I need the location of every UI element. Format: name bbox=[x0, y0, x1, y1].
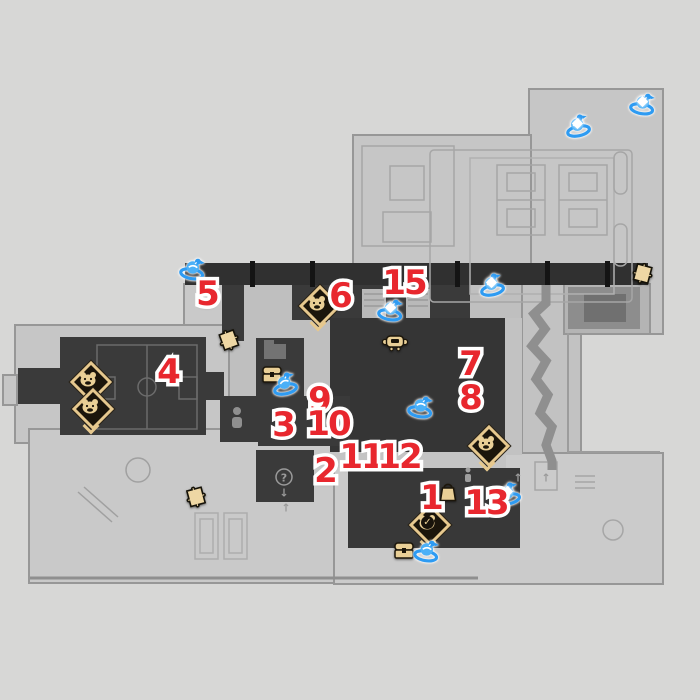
ellipse-deco bbox=[314, 305, 320, 309]
path-deco bbox=[441, 488, 456, 501]
path-deco bbox=[582, 115, 587, 119]
svg-deco bbox=[476, 434, 496, 452]
origami-bird-icon bbox=[408, 394, 435, 425]
number-fill: 6 bbox=[329, 279, 351, 313]
enemy-diamond-icon bbox=[467, 424, 505, 462]
map-room bbox=[584, 294, 626, 322]
number-fill: 3 bbox=[272, 408, 294, 442]
map-number-marker: 1313 bbox=[464, 486, 507, 520]
svg-deco bbox=[269, 368, 301, 400]
path-deco bbox=[200, 261, 205, 265]
warp-trotter-icon bbox=[382, 334, 408, 356]
map-number-marker: 55 bbox=[196, 277, 218, 311]
map-symbol-glyph: ? bbox=[281, 473, 287, 484]
origami-bird-icon bbox=[630, 91, 657, 122]
number-fill: 15 bbox=[382, 266, 425, 300]
ellipse-deco bbox=[85, 381, 91, 385]
number-fill: 1 bbox=[420, 481, 442, 515]
map-door-tick bbox=[605, 261, 610, 287]
circle-deco bbox=[90, 378, 92, 380]
number-fill: 11 bbox=[339, 440, 382, 474]
path-deco bbox=[650, 96, 655, 100]
svg-deco bbox=[405, 391, 436, 422]
enemy-face-icon bbox=[476, 434, 496, 456]
origami-bird-icon bbox=[414, 538, 441, 569]
number-fill: 12 bbox=[377, 440, 420, 474]
svg-deco bbox=[215, 326, 246, 357]
map-number-marker: 44 bbox=[157, 355, 179, 389]
path-deco bbox=[512, 483, 517, 487]
svg-deco bbox=[307, 294, 327, 312]
game-level-map: ?↓↑↑↑ ✓ bbox=[0, 0, 700, 700]
map-door-tick bbox=[250, 261, 255, 287]
map-number-marker: 66 bbox=[329, 279, 351, 313]
number-fill: 2 bbox=[314, 454, 336, 488]
path-deco bbox=[428, 399, 433, 403]
circle-deco bbox=[92, 405, 94, 407]
map-number-marker: 88 bbox=[459, 381, 481, 415]
path-deco bbox=[289, 373, 294, 377]
map-number-marker: 22 bbox=[314, 454, 336, 488]
origami-bird-icon bbox=[272, 371, 299, 402]
map-number-marker: 11 bbox=[420, 481, 442, 515]
map-symbol-glyph: ↑ bbox=[281, 503, 290, 514]
map-room bbox=[18, 368, 62, 404]
map-number-marker: 77 bbox=[459, 347, 481, 381]
circle-deco bbox=[313, 302, 315, 304]
number-fill: 5 bbox=[196, 277, 218, 311]
map-corridor bbox=[505, 318, 522, 455]
origami-bird-icon bbox=[479, 272, 506, 303]
map-number-marker: 33 bbox=[272, 408, 294, 442]
path-deco bbox=[184, 485, 207, 509]
map-number-marker: 1010 bbox=[306, 407, 349, 441]
circle-deco bbox=[84, 378, 86, 380]
number-fill: 13 bbox=[464, 486, 507, 520]
svg-deco bbox=[78, 370, 98, 388]
svg-deco bbox=[80, 397, 100, 415]
map-room bbox=[448, 285, 470, 320]
map-room bbox=[204, 372, 224, 400]
map-plate bbox=[2, 374, 18, 406]
ellipse-deco bbox=[483, 445, 489, 449]
number-fill: 8 bbox=[459, 381, 481, 415]
path-deco bbox=[496, 274, 501, 278]
map-symbol-glyph: ↑ bbox=[541, 473, 550, 484]
number-fill: 4 bbox=[157, 355, 179, 389]
rect-deco bbox=[402, 548, 406, 553]
ellipse-deco bbox=[87, 408, 93, 412]
circle-deco bbox=[86, 405, 88, 407]
map-symbol-glyph: ↓ bbox=[279, 488, 288, 499]
svg-deco bbox=[382, 334, 408, 352]
enemy-face-icon bbox=[307, 294, 327, 316]
puzzle-piece-icon bbox=[631, 263, 655, 291]
puzzle-piece-icon bbox=[185, 486, 209, 514]
enemy-diamond-icon bbox=[71, 387, 109, 425]
circle-deco bbox=[397, 347, 400, 350]
circle-deco bbox=[390, 347, 393, 350]
number-fill: 7 bbox=[459, 347, 481, 381]
circle-deco bbox=[482, 442, 484, 444]
path-deco bbox=[631, 261, 654, 285]
origami-bird-icon bbox=[565, 113, 592, 144]
svg-deco bbox=[411, 535, 442, 566]
map-number-marker: 1515 bbox=[382, 266, 425, 300]
puzzle-piece-icon bbox=[218, 329, 242, 357]
map-door-tick bbox=[455, 261, 460, 287]
circle-deco bbox=[488, 442, 490, 444]
svg-deco bbox=[628, 260, 657, 289]
rect-deco bbox=[391, 339, 399, 343]
enemy-face-icon bbox=[80, 397, 100, 419]
map-number-marker: 1111 bbox=[339, 440, 382, 474]
circle-deco bbox=[319, 302, 321, 304]
path-deco bbox=[434, 543, 439, 547]
path-deco bbox=[217, 327, 241, 352]
map-door-tick bbox=[545, 261, 550, 287]
map-room bbox=[220, 396, 258, 442]
map-number-marker: 1212 bbox=[377, 440, 420, 474]
number-fill: 10 bbox=[306, 407, 349, 441]
svg-deco bbox=[182, 483, 211, 512]
